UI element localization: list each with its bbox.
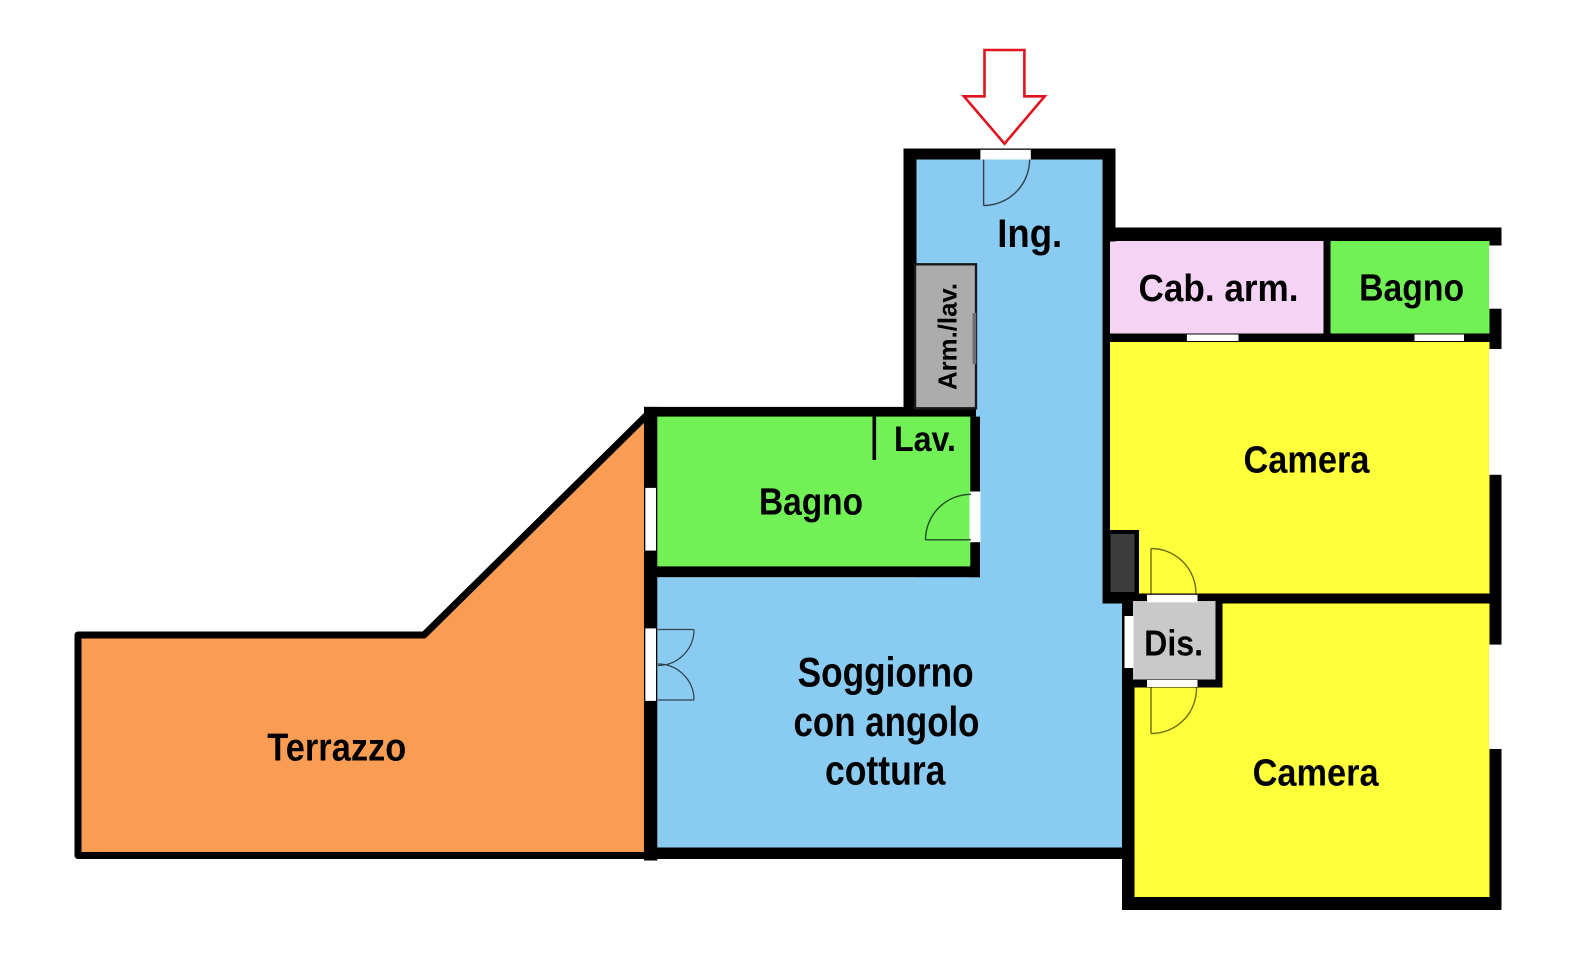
svg-text:Dis.: Dis. — [1144, 622, 1203, 663]
svg-text:Bagno: Bagno — [759, 481, 863, 523]
svg-text:Camera: Camera — [1253, 753, 1380, 795]
svg-text:Cab. arm.: Cab. arm. — [1139, 268, 1299, 310]
svg-text:Camera: Camera — [1244, 439, 1371, 481]
svg-text:Lav.: Lav. — [894, 420, 956, 459]
svg-text:cottura: cottura — [825, 746, 946, 793]
svg-text:con angolo: con angolo — [794, 698, 980, 745]
svg-text:Arm./lav.: Arm./lav. — [933, 283, 963, 390]
svg-text:Soggiorno: Soggiorno — [798, 649, 974, 696]
svg-text:Bagno: Bagno — [1359, 268, 1464, 310]
svg-text:Terrazzo: Terrazzo — [267, 727, 406, 770]
svg-text:Ing.: Ing. — [997, 212, 1062, 256]
